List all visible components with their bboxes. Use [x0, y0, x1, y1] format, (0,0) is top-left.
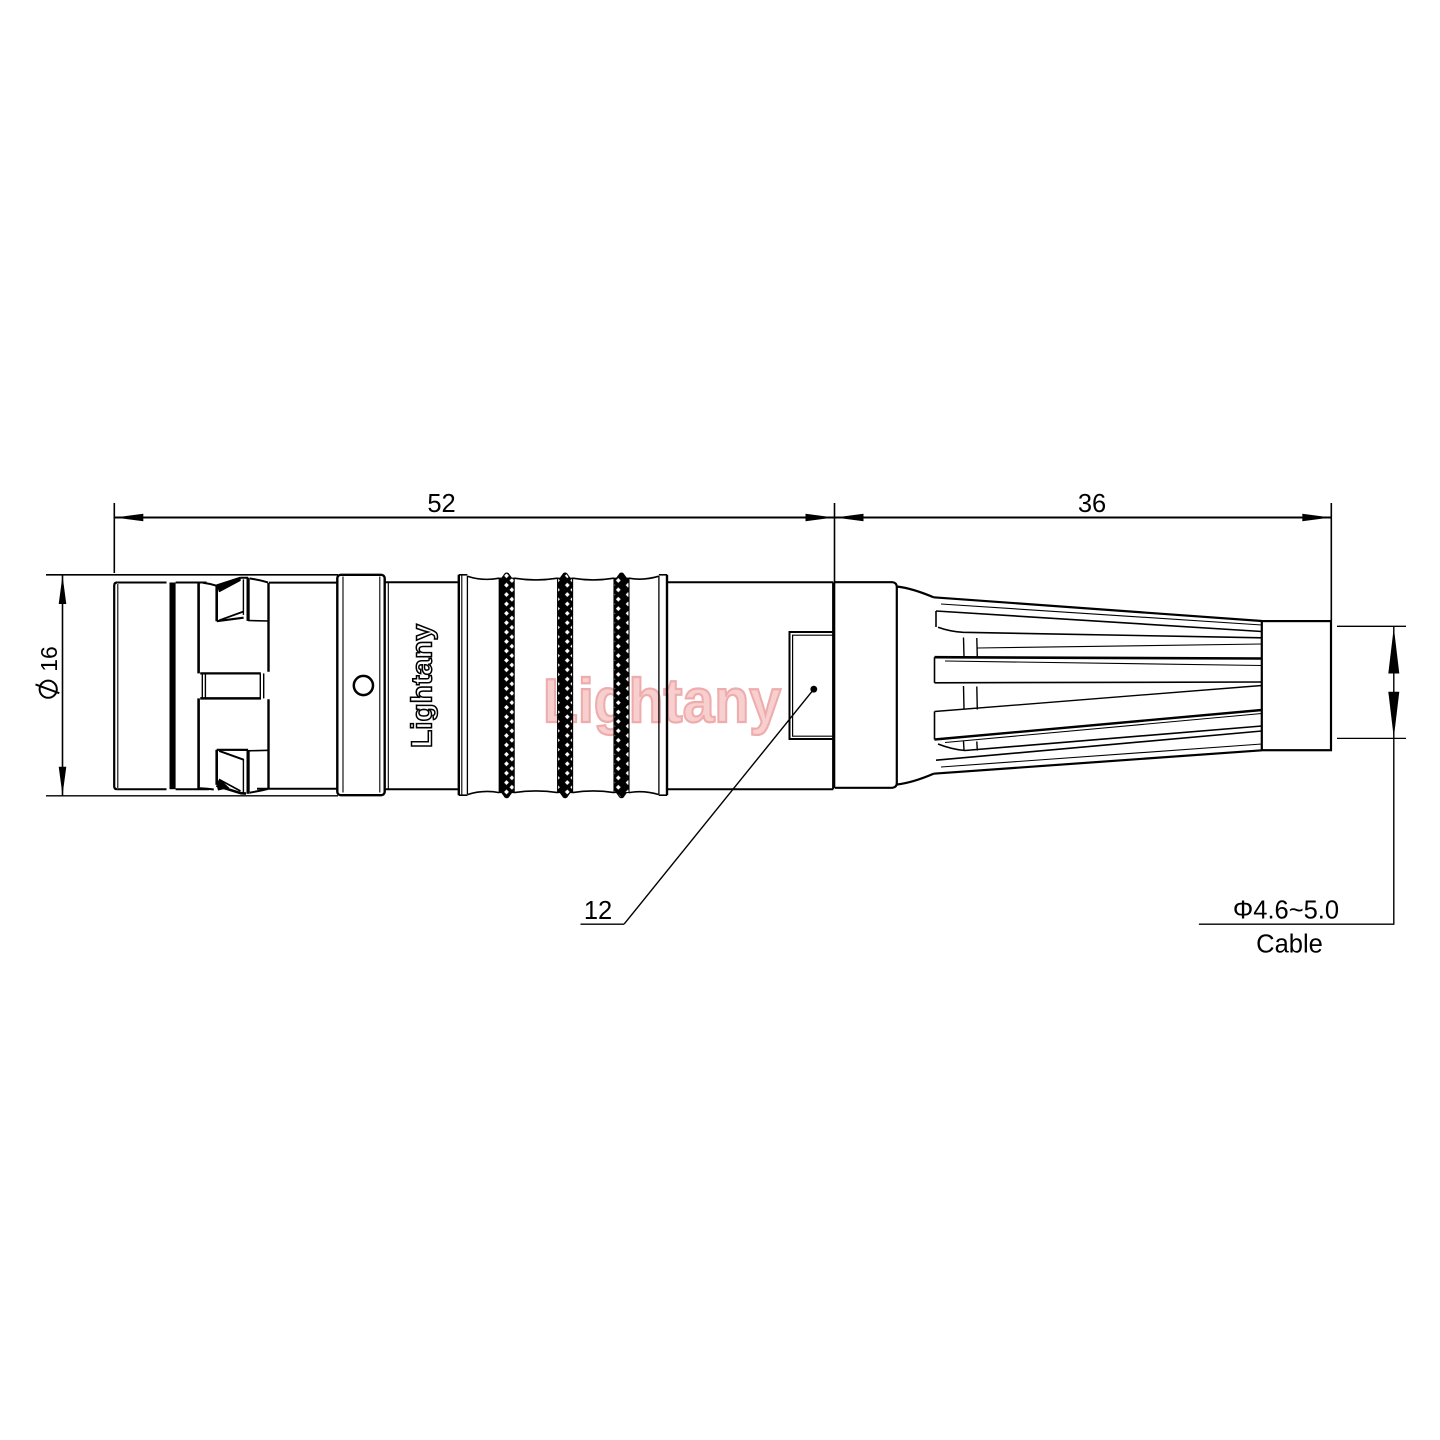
svg-text:Φ4.6~5.0: Φ4.6~5.0 — [1233, 897, 1339, 925]
svg-text:16: 16 — [36, 646, 62, 672]
svg-text:52: 52 — [427, 490, 455, 518]
svg-text:Lightany: Lightany — [407, 624, 439, 748]
svg-text:12: 12 — [584, 897, 612, 925]
svg-text:Lightany: Lightany — [543, 667, 781, 736]
svg-text:Cable: Cable — [1256, 931, 1323, 959]
svg-text:36: 36 — [1078, 490, 1106, 518]
